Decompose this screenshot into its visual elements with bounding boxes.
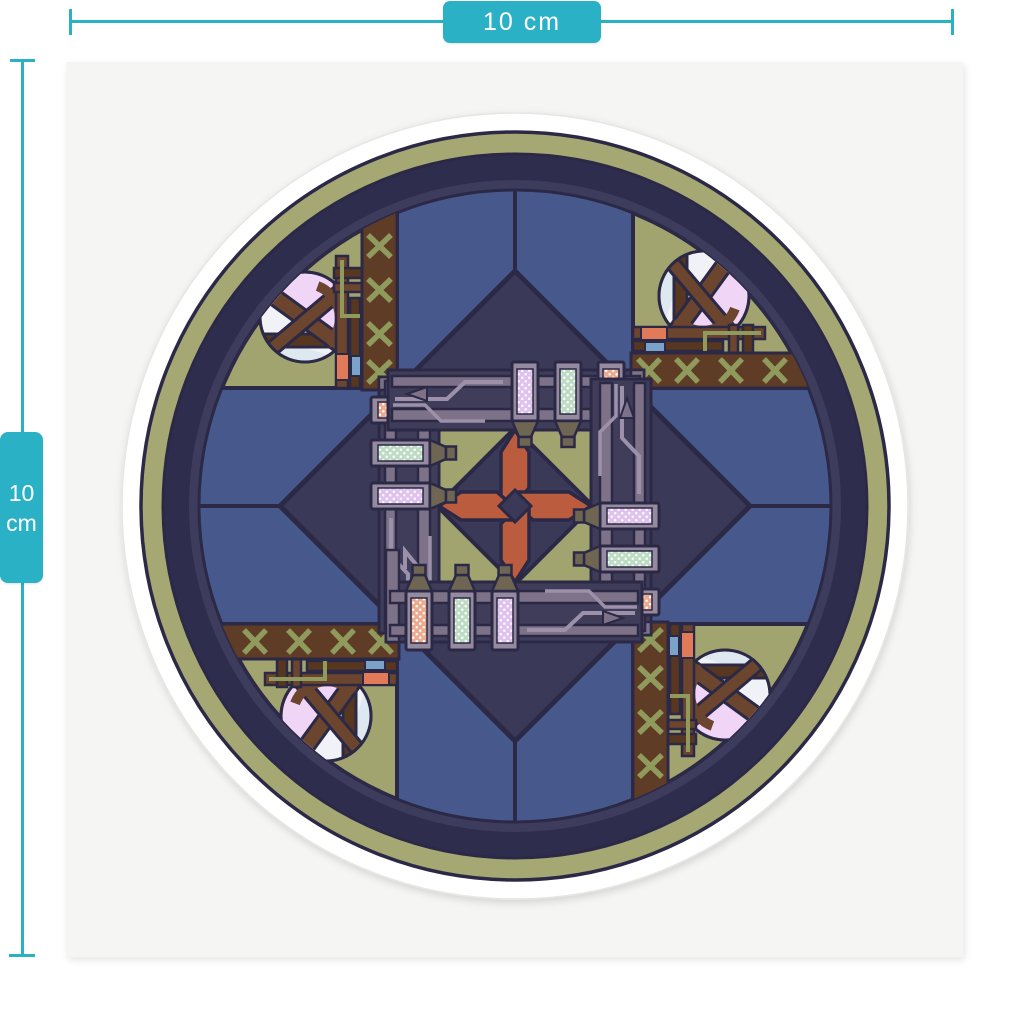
sticker-mockup: 10 cm 10 cm xyxy=(0,0,1024,1024)
height-dimension-label-line2: cm xyxy=(6,508,37,538)
center-motif xyxy=(437,428,593,584)
sticker-artwork xyxy=(0,0,1024,1024)
width-dimension-cap-right xyxy=(951,9,954,35)
height-dimension-cap-bottom xyxy=(9,954,35,957)
width-dimension-badge: 10 cm xyxy=(443,1,601,43)
width-dimension-cap-left xyxy=(69,9,72,35)
width-dimension-label: 10 cm xyxy=(483,8,561,37)
height-dimension-cap-top xyxy=(10,59,35,62)
height-dimension-badge: 10 cm xyxy=(0,432,43,583)
height-dimension-label-line1: 10 xyxy=(9,478,35,508)
